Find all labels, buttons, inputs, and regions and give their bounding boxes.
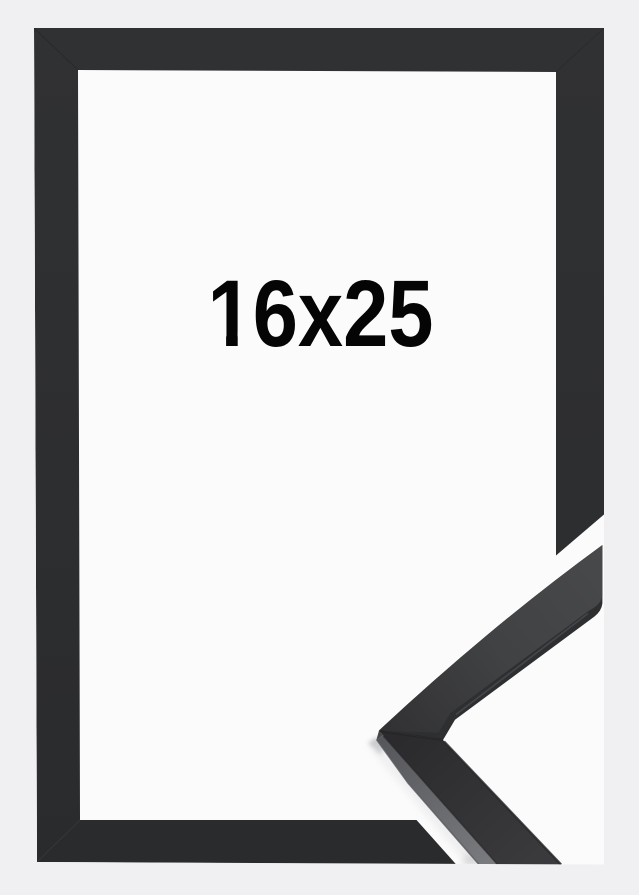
svg-text:16x25: 16x25	[208, 261, 434, 367]
